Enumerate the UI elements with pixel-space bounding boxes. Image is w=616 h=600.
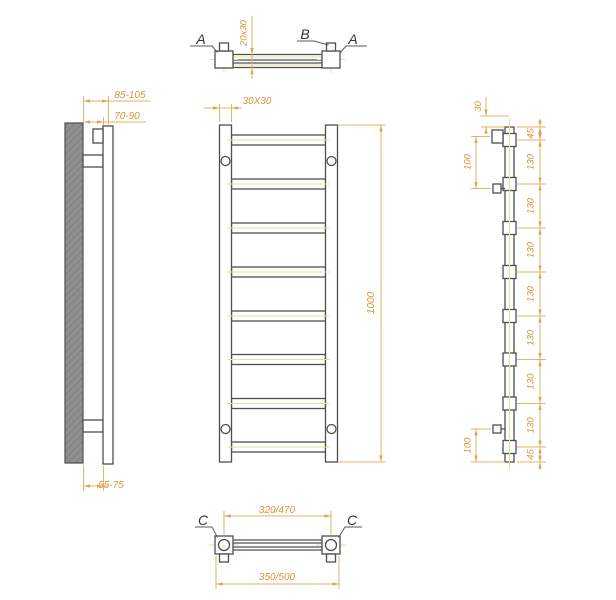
bottom-tube-lines [233,540,322,550]
dim-rung-spacing-7: 130 [526,417,537,434]
bottom-bracket [83,420,103,432]
dim-height-text: 1000 [366,291,377,314]
dim-rung-spacing-3: 130 [526,241,537,258]
left-valve-nut [220,554,229,562]
top-fitting-side [93,129,103,143]
bottom-section-view: C C 320/470 350/500 [195,505,362,589]
section-label-c-left: C [198,512,209,528]
left-rail [220,125,232,462]
right-fitting [322,51,340,68]
mounting-holes [221,157,336,434]
right-valve-nut [327,554,336,562]
top-tube-centerlines [233,57,322,65]
dim-bracket-top-text: 100 [463,153,474,170]
left-fitting [215,51,233,68]
dim-wall-to-face-text: 85-105 [114,90,146,101]
dim-rail-profile-text: 30X30 [243,96,272,107]
technical-drawing-page: A B A 20x30 85-105 70-90 55-75 [0,0,616,600]
mounting-hole [221,157,230,166]
dim-profile-text: 20x30 [239,19,250,47]
left-side-view: 85-105 70-90 55-75 [65,90,150,491]
mounting-hole [327,157,336,166]
section-label-a-right: A [347,31,357,47]
dim-rung-spacing-6: 130 [526,373,537,390]
dim-wall-to-bottom-text: 55-75 [98,480,124,491]
left-valve-port [219,540,230,551]
right-valve-port [326,540,337,551]
front-view: 30X30 1000 [204,96,385,462]
section-label-b: B [300,26,309,42]
bottom-bracket-profile [493,425,501,433]
top-bracket [83,155,103,167]
dim-lines-height [339,125,385,462]
section-label-c-right: C [347,512,358,528]
dim-rung-spacing-5: 130 [526,329,537,346]
dim-rung-spacing-1: 130 [526,153,537,170]
left-fitting-nut [220,43,229,51]
dim-top-text: 30 [473,101,484,112]
leader-c-right [339,527,363,538]
dim-end-top-text: 45 [526,128,537,139]
mounting-hole [327,425,336,434]
top-fitting-profile [492,130,503,143]
right-fitting-nut [327,43,336,51]
right-rail [326,125,338,462]
mounting-hole [221,425,230,434]
dim-lines-bracket-top [471,137,491,189]
dim-arrows-top-offset [484,110,487,134]
dim-rung-spacing-4: 130 [526,285,537,302]
rungs [232,135,326,452]
dim-bracket-bottom-text: 100 [463,437,474,454]
dim-mount-centers-text: 320/470 [259,505,296,516]
wall [65,123,83,463]
top-section-view: A B A 20x30 [190,16,367,79]
towel-rail-drawing-canvas: A B A 20x30 85-105 70-90 55-75 [0,0,616,600]
leader-c-left [195,527,218,538]
dim-wall-to-tube-text: 70-90 [114,111,140,122]
right-side-view: 45 130 130 130 130 130 130 130 45 30 100… [463,97,547,470]
top-bracket-profile [493,184,501,193]
dim-rung-spacing-2: 130 [526,197,537,214]
dim-end-bottom-text: 45 [526,449,537,460]
dim-lines-rail-profile [204,104,242,122]
rail-profile [103,126,113,464]
dim-overall-width-text: 350/500 [259,572,296,583]
section-label-a-left: A [195,31,205,47]
